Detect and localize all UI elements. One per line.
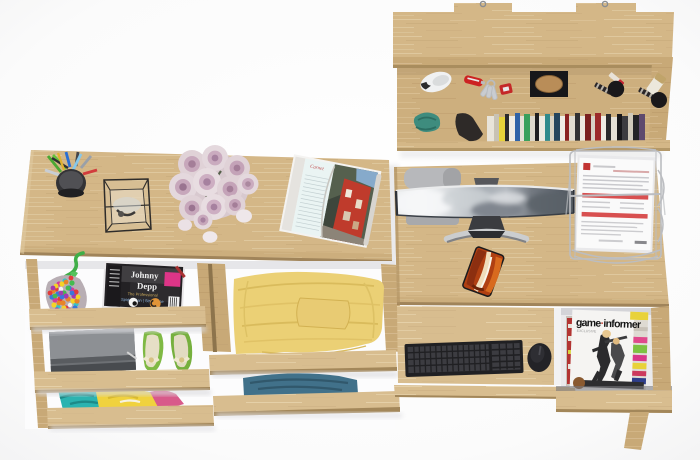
svg-text:Depp: Depp	[137, 281, 158, 292]
svg-text:EXCLUSIVE: EXCLUSIVE	[577, 329, 597, 334]
svg-text:Johnny: Johnny	[131, 269, 160, 280]
